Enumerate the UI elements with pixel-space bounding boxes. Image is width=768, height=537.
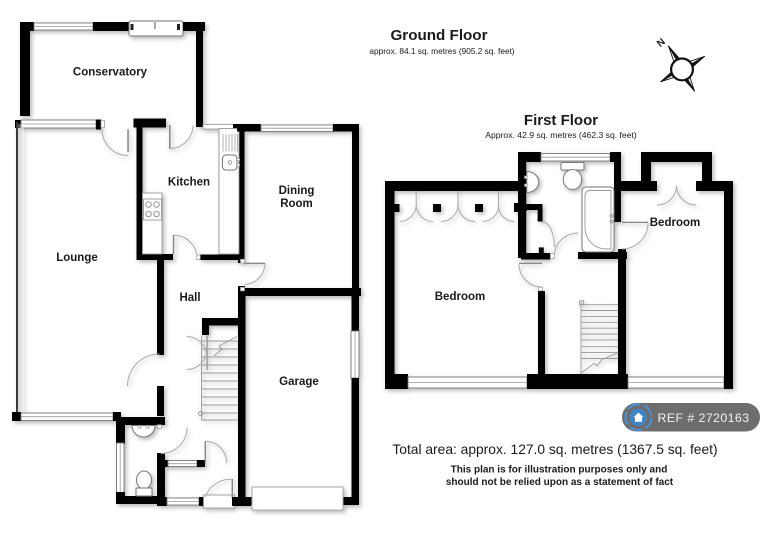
svg-text:Bedroom: Bedroom [435,291,485,303]
svg-text:This plan is for illustration: This plan is for illustration purposes o… [451,465,668,476]
svg-text:Lounge: Lounge [56,252,98,264]
svg-text:N: N [655,37,668,50]
svg-text:Hall: Hall [179,292,200,304]
svg-text:Room: Room [280,198,313,210]
svg-text:Kitchen: Kitchen [168,177,210,189]
svg-text:Conservatory: Conservatory [73,67,148,79]
svg-text:Ground Floor: Ground Floor [390,27,487,44]
svg-text:Garage: Garage [279,376,319,388]
svg-text:REF # 2720163: REF # 2720163 [658,411,750,425]
svg-text:should not be relied upon as a: should not be relied upon as a statement… [446,477,674,488]
svg-text:approx. 84.1 sq. metres (905.2: approx. 84.1 sq. metres (905.2 sq. feet) [369,46,515,56]
svg-text:Dining: Dining [279,185,315,197]
svg-text:Approx. 42.9 sq. metres (462.3: Approx. 42.9 sq. metres (462.3 sq. feet) [485,130,637,140]
svg-text:Total area: approx. 127.0 sq.: Total area: approx. 127.0 sq. metres (13… [392,442,717,457]
svg-text:First Floor: First Floor [524,112,598,129]
svg-text:Bedroom: Bedroom [650,217,700,229]
